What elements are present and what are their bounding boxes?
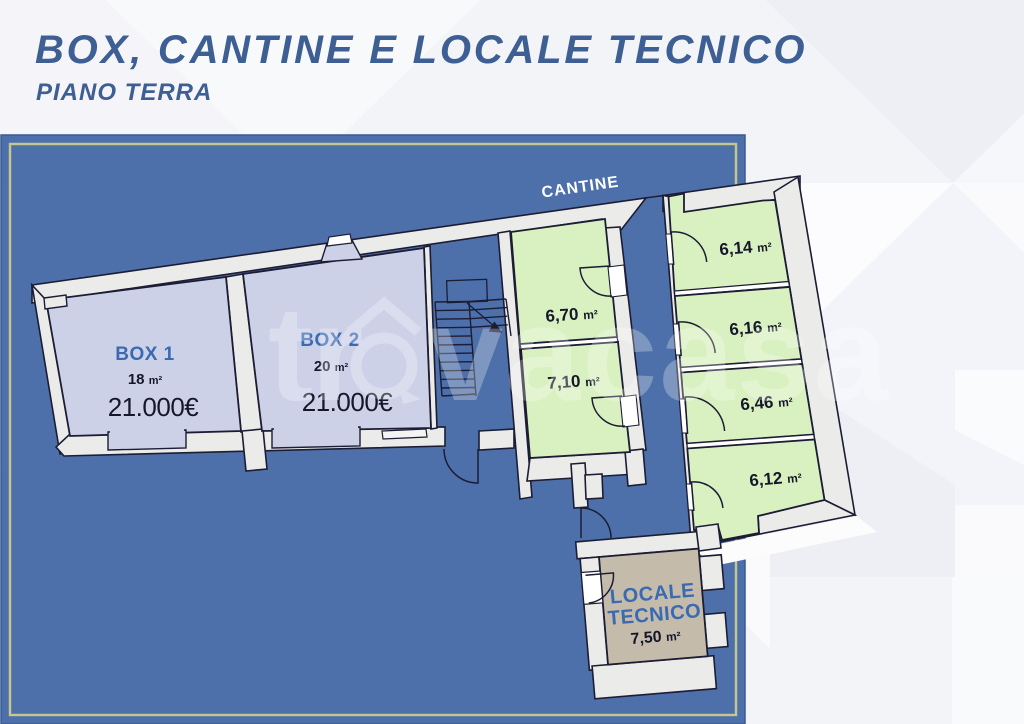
svg-text:t: t (268, 278, 313, 429)
svg-text:21.000€: 21.000€ (108, 392, 200, 422)
svg-text:vacasa: vacasa (428, 278, 890, 429)
svg-text:BOX 1: BOX 1 (115, 344, 175, 365)
svg-text:PIANO TERRA: PIANO TERRA (36, 79, 212, 106)
svg-text:BOX, CANTINE E LOCALE TECNICO: BOX, CANTINE E LOCALE TECNICO (35, 28, 807, 72)
